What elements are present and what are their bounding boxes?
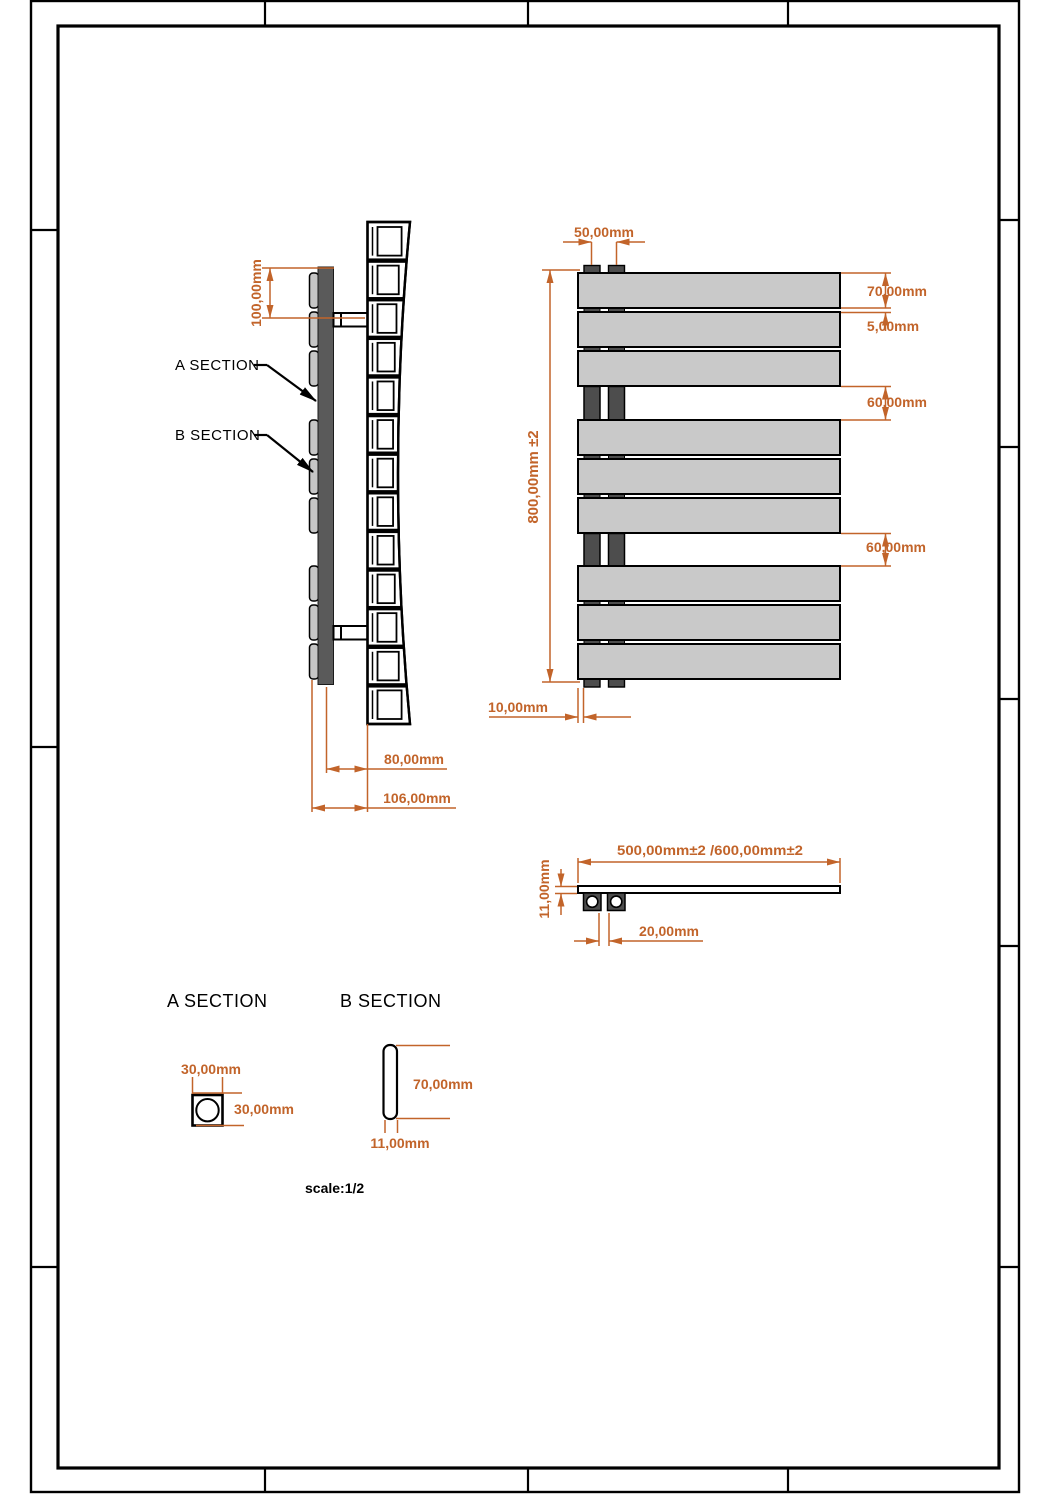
dim-bracket-offset: 100,00mm	[248, 259, 264, 327]
detail-a-bore	[196, 1099, 218, 1121]
dim-panel-gap: 5,00mm	[867, 318, 919, 334]
dim-group-gap-bottom: 60,00mm	[866, 539, 926, 555]
section-leaders	[254, 365, 316, 472]
side-label-b-section: B SECTION	[175, 427, 260, 444]
front-view	[578, 266, 840, 688]
detail-b-section	[384, 1045, 398, 1119]
dim-tube-gap: 20,00mm	[639, 923, 699, 939]
dim-overall-depth: 106,00mm	[383, 790, 451, 806]
side-panel-tabs	[310, 273, 319, 679]
detail-a-height: 30,00mm	[234, 1101, 294, 1117]
inner-border	[58, 26, 999, 1468]
top-view-tube-bore-1	[587, 896, 598, 907]
detail-b-thickness: 11,00mm	[370, 1135, 429, 1151]
detail-a-section	[193, 1095, 223, 1126]
dim-group-gap-top: 60,00mm	[867, 394, 927, 410]
dim-panel-height: 70,00mm	[867, 283, 927, 299]
side-view	[310, 222, 411, 724]
side-collector-bar	[318, 267, 334, 685]
dim-depth: 80,00mm	[384, 751, 444, 767]
dim-panel-thickness: 11,00mm	[536, 859, 552, 918]
outer-border	[31, 1, 1019, 1492]
sheet-frame	[31, 1, 1019, 1492]
top-view	[578, 886, 840, 911]
side-wall-brackets	[334, 313, 368, 640]
zone-ticks	[31, 1, 1019, 1492]
drawing-sheet: A SECTION B SECTION 100,00mm 80,00mm 106…	[0, 0, 1058, 1497]
detail-b-panel-slab	[384, 1045, 398, 1119]
top-view-tube-bore-2	[611, 896, 622, 907]
top-view-panel-bar	[578, 886, 840, 893]
scale-note: scale:1/2	[305, 1180, 364, 1196]
detail-a-width: 30,00mm	[181, 1061, 241, 1077]
dim-overall-height: 800,00mm ±2	[525, 430, 542, 523]
dim-tube-spacing: 50,00mm	[574, 224, 634, 240]
front-panels	[578, 273, 840, 679]
side-label-a-section: A SECTION	[175, 357, 260, 374]
detail-heading-b: B SECTION	[340, 991, 442, 1011]
dim-tube-inset: 10,00mm	[488, 699, 548, 715]
dim-overall-width: 500,00mm±2 /600,00mm±2	[617, 842, 803, 858]
technical-drawing: A SECTION B SECTION 100,00mm 80,00mm 106…	[0, 0, 1058, 1497]
detail-heading-a: A SECTION	[167, 991, 268, 1011]
detail-b-height: 70,00mm	[413, 1076, 473, 1092]
